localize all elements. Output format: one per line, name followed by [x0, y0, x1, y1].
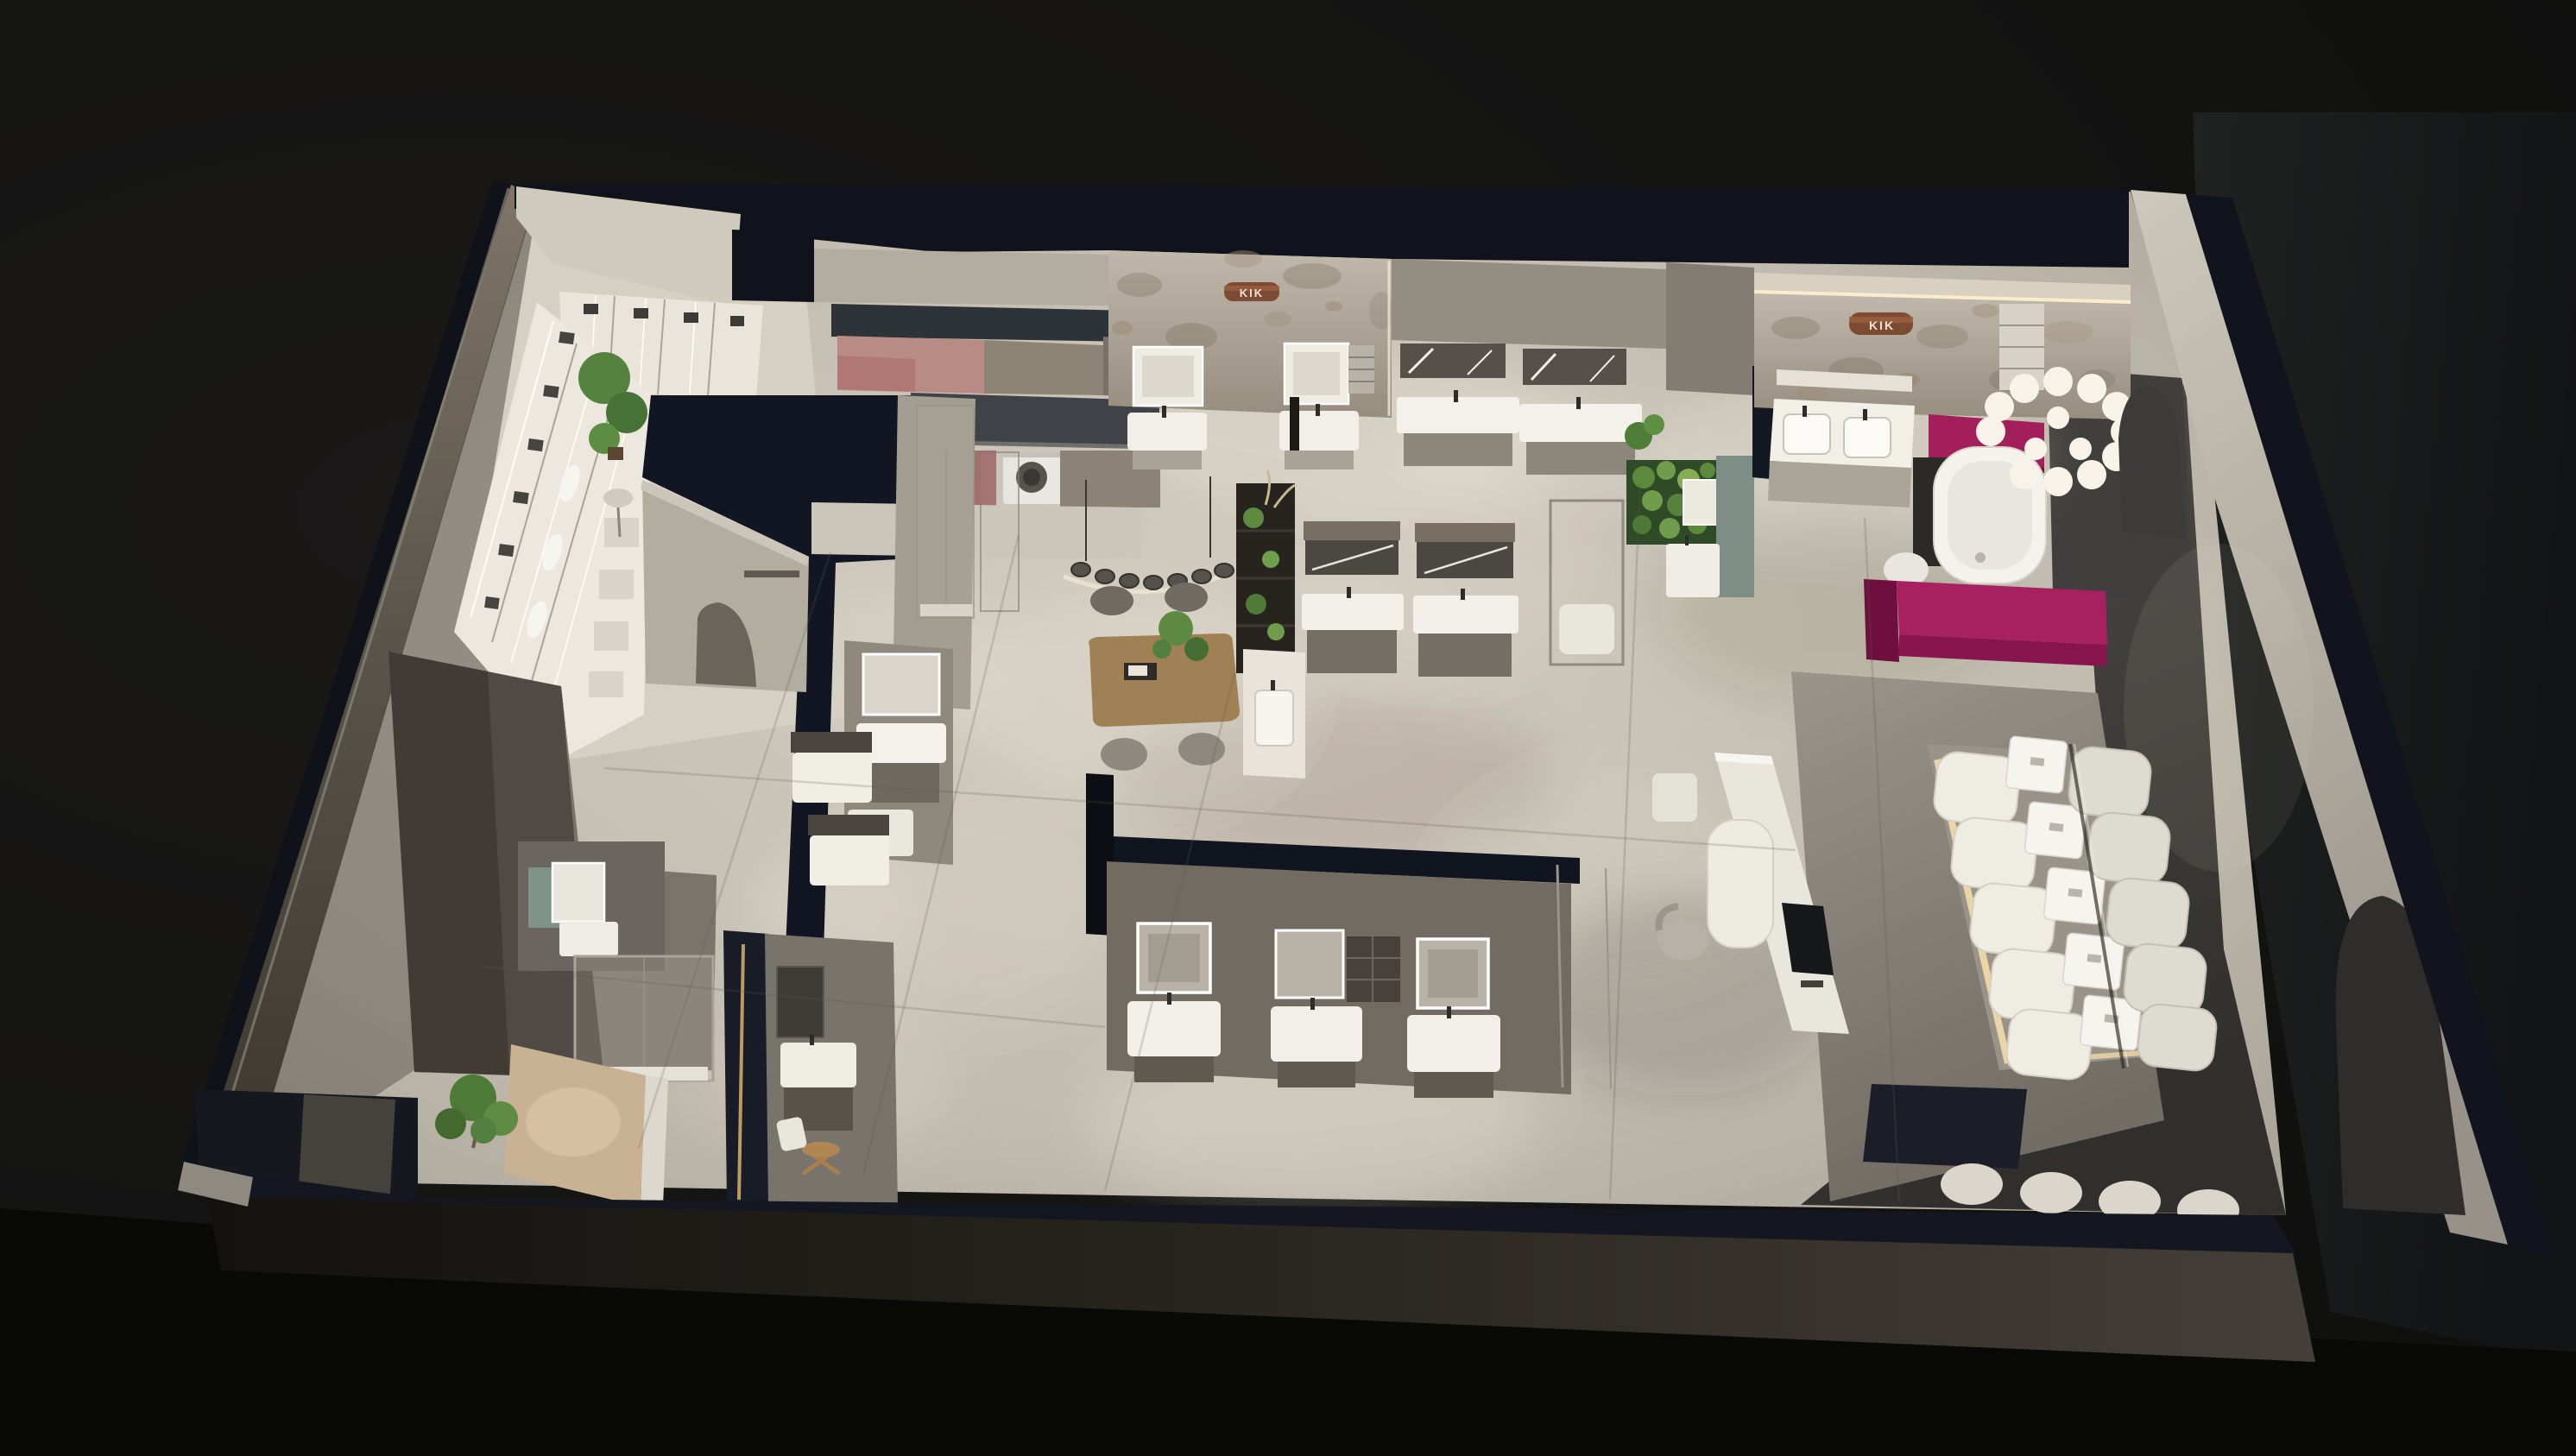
svg-text:KIK: KIK — [1240, 287, 1264, 299]
svg-text:KIK: KIK — [1869, 318, 1895, 332]
